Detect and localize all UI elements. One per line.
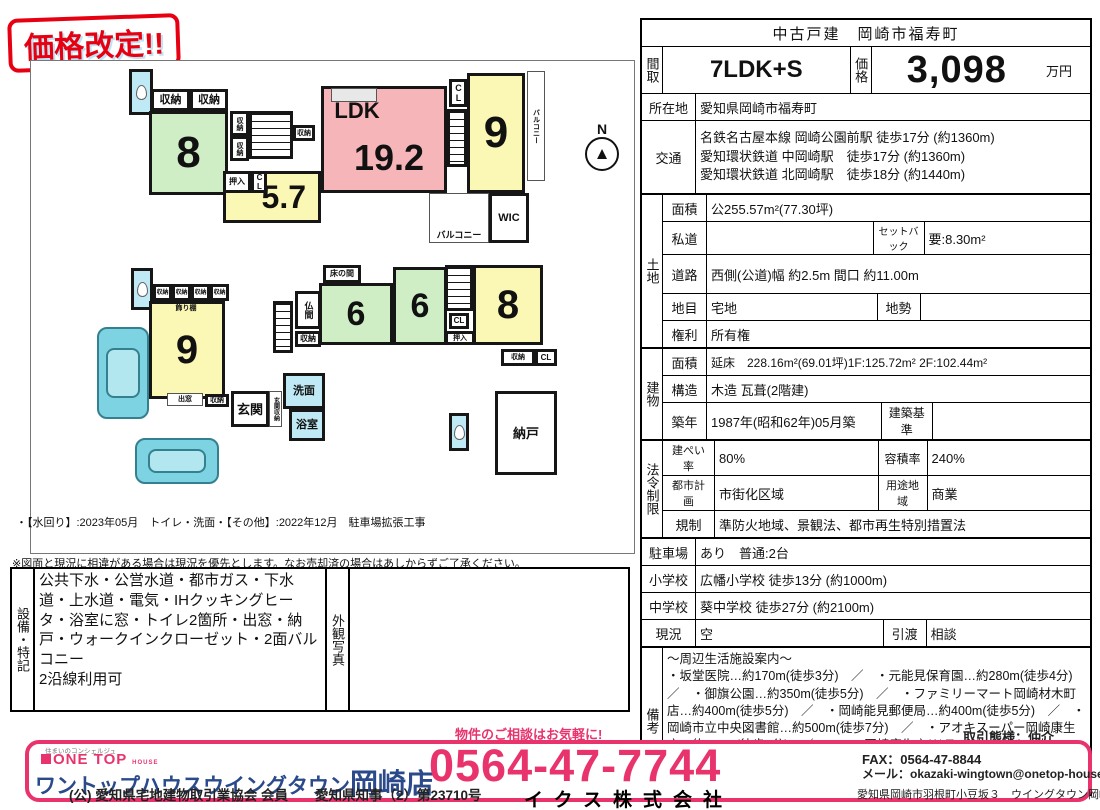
closet-2f-e: 収納 [293, 125, 315, 141]
land-section-label: 土地 [642, 195, 663, 347]
built-year-value: 1987年(昭和62年)05月築 [707, 403, 881, 439]
handover-value: 相談 [927, 620, 1090, 646]
butsuma-room: 仏間 [295, 291, 321, 329]
stairs-1f-b [445, 265, 473, 311]
room-9-2f: 9 [467, 73, 525, 193]
room-8-2f: 8 [149, 111, 228, 195]
room-6-b: 6 [393, 267, 447, 345]
renovation-note: ・【水回り】:2023年05月 トイレ・洗面・【その他】:2022年12月 駐車… [16, 514, 426, 530]
closet-1f-c: 収納 [191, 284, 210, 301]
balcony-2f-side: バルコニー [527, 71, 545, 181]
regulation-value: 準防火地域、景観法、都市再生特別措置法 [715, 511, 1090, 537]
setback-value: 要:8.30m² [925, 222, 1091, 254]
rights-value: 所有権 [707, 321, 1090, 347]
building-section-label: 建物 [642, 349, 663, 439]
transport-label: 交通 [642, 121, 696, 193]
genkan-room: 玄関 [231, 391, 269, 427]
far-label: 容積率 [878, 441, 928, 475]
equipment-section-label: 設備・特記 [12, 569, 35, 710]
equipment-table: 設備・特記 公共下水・公営水道・都市ガス・下水道・上水道・電気・IHクッキングヒ… [10, 567, 630, 712]
junior-high-value: 葵中学校 徒歩27分 (約2100m) [696, 593, 1090, 619]
car-2 [135, 438, 219, 484]
building-standard-value [933, 403, 1090, 439]
genkan-storage: 玄関収納 [269, 391, 282, 427]
company-name: イクス株式会社 [524, 785, 733, 810]
current-status-label: 現況 [642, 620, 696, 646]
far-value: 240% [928, 441, 1091, 475]
closet-cl-1f-a: CL [449, 313, 469, 329]
floorplan: N ▲ 収納収納8収納収納収納5.7押入CLLDK19.2CL9バルコニーバルコ… [30, 60, 635, 554]
closet-1f-f: 収納 [295, 331, 321, 347]
oshiire-2f: 押入 [223, 171, 251, 193]
exterior-photo-label: 外観写真 [327, 569, 350, 710]
office-address: 愛知県岡崎市羽根町小豆坂３ ウイングタウン岡崎１F [857, 786, 1100, 802]
coverage-ratio-value: 80% [715, 441, 878, 475]
kazaridana-label: 飾り棚 [161, 302, 211, 314]
building-standard-label: 建築基準 [881, 403, 933, 439]
built-year-label: 築年 [663, 403, 707, 439]
car-1 [97, 327, 149, 419]
closet-2f-d: 収納 [230, 136, 249, 161]
parking-value: あり 普通:2台 [696, 539, 1090, 565]
land-category-value: 宅地 [707, 294, 877, 320]
footer-contact-box: 住まいのコンシェルジュ ONE TOP HOUSE ワントップハウスウイングタウ… [25, 740, 1092, 802]
elementary-school-value: 広幡小学校 徒歩13分 (約1000m) [696, 566, 1090, 592]
bath-room: 浴室 [289, 409, 325, 441]
city-planning-label: 都市計画 [663, 476, 715, 510]
ldk-label: LDK [325, 97, 389, 125]
topography-value [921, 294, 1091, 320]
balcony-2f-rear: バルコニー [429, 193, 489, 243]
floorplan-type-label: 間取 [642, 47, 663, 93]
zoning-label: 用途地域 [878, 476, 928, 510]
building-area-label: 面積 [663, 349, 707, 375]
closet-cl-2f-a: CL [251, 171, 267, 193]
stairs-2f [249, 111, 293, 159]
ldk-size-label: 19.2 [343, 137, 435, 179]
equipment-text: 公共下水・公営水道・都市ガス・下水道・上水道・電気・IHクッキングヒータ・浴室に… [35, 569, 327, 710]
senmen-room: 洗面 [283, 373, 325, 409]
private-road-value [707, 222, 873, 254]
parking-label: 駐車場 [642, 539, 696, 565]
price-unit: 万円 [1042, 47, 1090, 93]
location-label: 所在地 [642, 94, 696, 120]
closet-2f-c: 収納 [230, 111, 249, 136]
closet-1f-b: 収納 [172, 284, 191, 301]
coverage-ratio-label: 建ぺい率 [663, 441, 715, 475]
spec-table: 中古戸建 岡崎市福寿町 間取 7LDK+S 価格 3,098 万円 所在地 愛知… [640, 18, 1092, 796]
city-planning-value: 市街化区域 [715, 476, 878, 510]
elementary-school-label: 小学校 [642, 566, 696, 592]
current-status-value: 空 [696, 620, 883, 646]
structure-label: 構造 [663, 376, 707, 402]
land-area-label: 面積 [663, 195, 707, 221]
location-value: 愛知県岡崎市福寿町 [696, 94, 1090, 120]
toilet-room-2f [129, 69, 153, 115]
closet-1f-e: 収納 [205, 394, 229, 407]
transport-value: 名鉄名古屋本線 岡崎公園前駅 徒歩17分 (約1360m) 愛知環状鉄道 中岡崎… [696, 121, 1090, 193]
legal-section-label: 法令制限 [642, 441, 663, 537]
closet-1f-d: 収納 [210, 284, 229, 301]
zoning-value: 商業 [928, 476, 1091, 510]
property-title: 中古戸建 岡崎市福寿町 [642, 20, 1090, 46]
handover-label: 引渡 [883, 620, 927, 646]
closet-1f-g: 収納 [501, 349, 535, 366]
rights-label: 権利 [663, 321, 707, 347]
room-9-1f: 9 [149, 301, 225, 399]
topography-label: 地勢 [877, 294, 921, 320]
closet-2f-a: 収納 [151, 89, 190, 111]
regulation-label: 規制 [663, 511, 715, 537]
private-road-label: 私道 [663, 222, 707, 254]
wic-room: WIC [489, 193, 529, 243]
road-label: 道路 [663, 255, 707, 293]
price-label: 価格 [850, 47, 872, 93]
email-address: メール：okazaki-wingtown@onetop-house.jp [862, 765, 1100, 782]
junior-high-label: 中学校 [642, 593, 696, 619]
floorplan-type-value: 7LDK+S [663, 47, 850, 93]
road-value: 西側(公道)幅 約2.5m 間口 約11.00m [707, 255, 1090, 293]
closet-cl-2f-b: CL [449, 79, 467, 107]
nando-room: 納戸 [495, 391, 557, 475]
license-number: (公) 愛知県宅地建物取引業協会 会員 愛知県知事（2）第23710号 [69, 784, 482, 804]
building-area-value: 延床 228.16m²(69.01坪)1F:125.72m² 2F:102.44… [707, 349, 1090, 375]
exterior-photo-placeholder [350, 569, 628, 710]
room-6-a: 6 [319, 283, 393, 345]
tokonoma: 床の間 [323, 265, 361, 283]
land-area-value: 公255.57m²(77.30坪) [707, 195, 1090, 221]
oshiire-1f: 押入 [445, 331, 475, 345]
stairs-1f [273, 301, 293, 353]
price-value: 3,098 [872, 47, 1042, 93]
demado-label: 出窓 [167, 393, 203, 406]
land-category-label: 地目 [663, 294, 707, 320]
closet-2f-b: 収納 [190, 89, 228, 111]
compass-icon: N ▲ [581, 121, 623, 171]
setback-label: セットバック [873, 222, 925, 254]
property-flyer: 価格改定!! N ▲ 収納収納8収納収納収納5.7押入CLLDK19.2CL9バ… [0, 0, 1100, 810]
closet-1f-a: 収納 [153, 284, 172, 301]
compass-needle-icon: ▲ [585, 137, 619, 171]
compass-north-label: N [581, 121, 623, 137]
room-8-1f: 8 [473, 265, 543, 345]
closet-cl-1f-b: CL [535, 349, 557, 366]
stairs-2f-mid [447, 109, 467, 167]
structure-value: 木造 瓦葺(2階建) [707, 376, 1090, 402]
toilet-room-1f-b [449, 413, 469, 451]
